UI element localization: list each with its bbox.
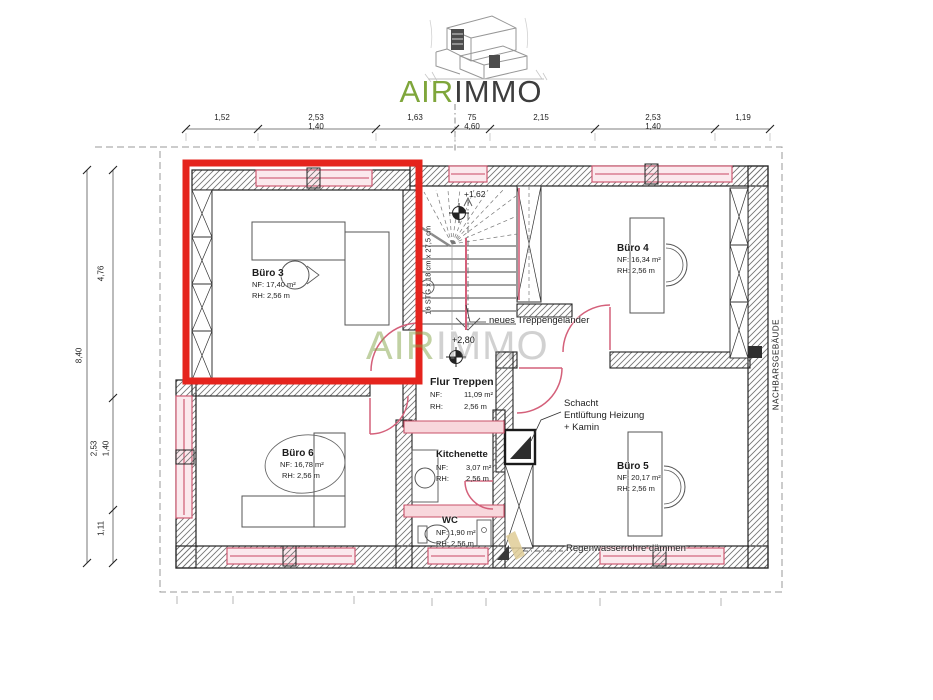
- kitchenette-fixtures: [412, 450, 438, 502]
- logo-air: AIR: [399, 74, 454, 109]
- dim-top-6: 2,531,40: [629, 114, 677, 132]
- logo-house-sketch: [425, 16, 547, 82]
- room-nf-wc: NF: 1,90 m²: [436, 529, 476, 538]
- floorplan-page: AIRIMMO AIRIMMO 1,52 2,531,40 1,63 754,6…: [0, 0, 933, 700]
- level-label-162: +1,62: [464, 190, 486, 200]
- stair-note: 16 STG x 18 cm x 27,5 cm: [425, 210, 434, 330]
- logo-immo: IMMO: [454, 74, 542, 109]
- dim-top-3: 1,63: [391, 114, 439, 123]
- shaft-note-1: Schacht: [564, 399, 598, 410]
- room-rh-buro4: RH: 2,56 m: [617, 267, 655, 276]
- dim-top-7: 1,19: [719, 114, 767, 123]
- dim-left-total: 8,40: [76, 331, 85, 379]
- dim-top-2: 2,531,40: [292, 114, 340, 132]
- room-rh-buro3: RH: 2,56 m: [252, 292, 290, 301]
- room-rh-buro5: RH: 2,56 m: [617, 485, 655, 494]
- dim-top-4: 754,60: [448, 114, 496, 132]
- room-nf-buro6: NF: 16,78 m²: [280, 461, 324, 470]
- dim-top-1: 1,52: [198, 114, 246, 123]
- shaft-note-2: Entlüftung Heizung: [564, 411, 644, 422]
- room-nf-flur: NF:11,09 m² RH:2,56 m: [430, 391, 493, 411]
- dim-left-2b: 1,40: [103, 424, 112, 472]
- level-marker-162: [449, 203, 469, 223]
- dim-left-2a: 2,53: [91, 424, 100, 472]
- logo: AIRIMMO: [386, 74, 556, 110]
- room-rh-wc: RH: 2,56 m: [436, 540, 474, 549]
- room-label-wc: WC: [442, 516, 458, 527]
- level-marker-280: [446, 347, 466, 367]
- dim-left-1: 4,76: [98, 249, 107, 297]
- room-nf-kitchenette: NF:3,07 m² RH:2,56 m: [436, 464, 491, 483]
- room-label-buro4: Büro 4: [617, 243, 649, 255]
- level-label-280: +2,80: [452, 335, 475, 345]
- stairs: [420, 190, 517, 330]
- railing-note: neues Treppengeländer: [489, 316, 589, 327]
- room-nf-buro3: NF: 17,40 m²: [252, 281, 296, 290]
- rainpipe-note: Regenwasserrohre dämmen: [566, 544, 686, 555]
- room-label-flur: Flur Treppen: [430, 376, 494, 388]
- room-label-buro5: Büro 5: [617, 461, 649, 473]
- dim-top-5: 2,15: [517, 114, 565, 123]
- room-rh-buro6: RH: 2,56 m: [282, 472, 320, 481]
- room-label-kitchenette: Kitchenette: [436, 450, 488, 461]
- shaft-note-3: + Kamin: [564, 423, 599, 434]
- room-label-buro3: Büro 3: [252, 268, 284, 280]
- room-nf-buro4: NF: 16,34 m²: [617, 256, 661, 265]
- neighbor-label: NACHBARSGEBÄUDE: [771, 305, 780, 425]
- room-nf-buro5: NF: 20,17 m²: [617, 474, 661, 483]
- highlight-rect-buro3: [186, 163, 419, 381]
- dim-left-3: 1,11: [98, 504, 107, 552]
- room-label-buro6: Büro 6: [282, 448, 314, 460]
